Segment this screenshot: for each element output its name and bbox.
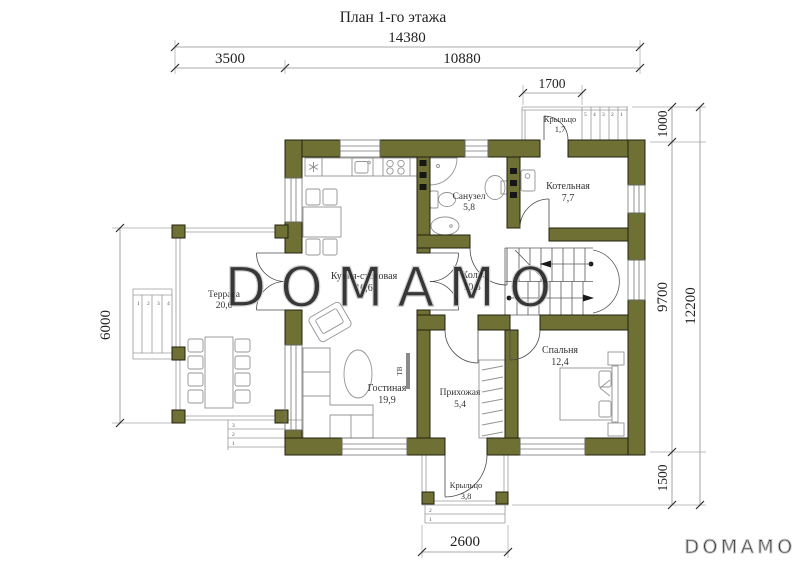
room-label-porch-top: Крыльцо [544,114,577,124]
window [465,140,488,157]
step-number: 2 [147,301,150,307]
dim-total-width: 14380 [388,30,426,46]
watermark-logo: DOMAMO [684,536,795,558]
nightstand [608,352,624,365]
dim-house-width: 10880 [443,51,481,67]
tv-label: ТВ [396,366,404,375]
room-label-bedroom: Спальня [542,345,578,356]
nightstand [608,423,624,436]
window [285,178,302,222]
step-number: 3 [602,112,605,118]
window [628,260,645,300]
room-label-living: Гостиная [368,383,407,394]
step-number: 4 [593,112,596,118]
room-label-bathroom: Санузел [452,192,485,202]
plan-title: План 1-го этажа [340,9,447,26]
dim-terrace-width: 3500 [215,51,245,67]
step-number: 3 [232,423,235,429]
room-area-entry: 5,4 [454,400,466,410]
dim-porch-bottom-width: 2600 [450,534,480,550]
step-number: 5 [584,112,587,118]
dim-porch-top-width: 1700 [539,76,566,91]
room-area-porch-top: 1,7 [555,124,566,134]
boiler [521,170,535,191]
window [628,185,645,213]
snowflake-icon [309,162,318,172]
dim-total-depth: 12200 [683,287,699,325]
room-area-porch-bottom: 3,8 [461,491,472,501]
stair-arrow [583,295,594,302]
kitchen-counter [322,158,417,176]
fridge [305,158,322,176]
room-area-boiler: 7,7 [562,193,575,204]
window [520,438,585,455]
floor-plan-page: План 1-го этажа 14380 3500 [0,0,800,565]
room-label-porch-bottom: Крыльцо [450,480,483,490]
watermark-center: DOMAMO [225,256,566,319]
step-number: 1 [232,441,235,447]
corner-shower [430,158,457,185]
step-number: 2 [232,432,235,438]
room-area-bedroom: 12,4 [551,357,569,368]
dim-house-depth: 9700 [655,282,671,312]
hallway-door [445,330,478,363]
dim-porch-bottom-depth: 1500 [655,464,670,491]
wardrobe [479,360,505,438]
window [342,438,407,455]
step-number: 2 [611,112,614,118]
dim-terrace-depth: 6000 [98,310,114,340]
bed [560,366,618,422]
dim-porch-top-depth: 1000 [655,110,670,137]
step-number: 1 [429,517,432,523]
corner-sofa [303,348,373,438]
bathtub-oval [431,217,459,235]
room-area-bathroom: 5,8 [463,203,475,213]
step-number: 2 [429,508,432,514]
kitchen-table [303,189,341,255]
terrace-table [188,337,250,408]
step-number: 1 [137,301,140,307]
step-number: 3 [157,301,160,307]
room-area-living: 19,9 [378,395,396,406]
step-number: 4 [167,301,170,307]
boiler-door [520,199,549,228]
window [340,140,380,157]
step-number: 1 [620,112,623,118]
room-label-entry: Прихожая [440,388,481,398]
wash-basin [485,176,507,200]
floor-plan-drawing: План 1-го этажа 14380 3500 [0,0,800,565]
room-label-boiler: Котельная [546,181,590,192]
